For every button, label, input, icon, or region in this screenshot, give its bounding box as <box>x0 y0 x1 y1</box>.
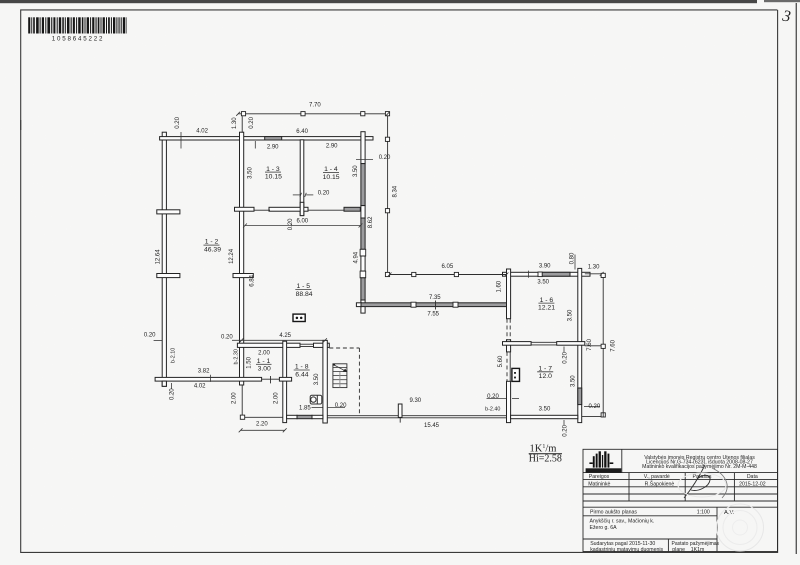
svg-text:0.20: 0.20 <box>318 190 330 196</box>
svg-text:0.20: 0.20 <box>288 218 294 230</box>
svg-text:Matininko kvalifikacijos pažym: Matininko kvalifikacijos pažymėjimo Nr. … <box>642 464 757 470</box>
svg-text:b-2.40: b-2.40 <box>485 407 500 413</box>
svg-text:0.20: 0.20 <box>562 424 568 436</box>
svg-text:0.20: 0.20 <box>379 155 391 161</box>
svg-text:3.50: 3.50 <box>571 375 577 387</box>
svg-text:0.20: 0.20 <box>562 351 568 363</box>
svg-text:1.30: 1.30 <box>232 117 238 129</box>
svg-text:plane 1K1m: plane 1K1m <box>672 547 704 553</box>
svg-text:1:100: 1:100 <box>697 509 710 515</box>
svg-text:3.82: 3.82 <box>198 368 210 374</box>
svg-text:3.50: 3.50 <box>314 373 320 385</box>
svg-text:2.90: 2.90 <box>326 143 338 149</box>
svg-text:10.15: 10.15 <box>323 174 340 181</box>
svg-text:3.50: 3.50 <box>539 407 551 413</box>
svg-text:6.84: 6.84 <box>249 274 255 286</box>
svg-text:3.00: 3.00 <box>258 366 271 373</box>
svg-text:b-2.30: b-2.30 <box>234 349 240 364</box>
svg-text:1 - 2: 1 - 2 <box>205 239 219 246</box>
svg-text:4.25: 4.25 <box>279 333 291 339</box>
svg-text:3.50: 3.50 <box>537 280 549 286</box>
svg-text:0.20: 0.20 <box>144 332 156 338</box>
svg-text:9.30: 9.30 <box>409 398 421 404</box>
svg-text:REGISTRŲ CENTRAS: REGISTRŲ CENTRAS <box>586 469 620 473</box>
svg-text:b-2.10: b-2.10 <box>170 348 176 363</box>
svg-text:Data: Data <box>747 474 758 480</box>
svg-text:6.00: 6.00 <box>296 218 308 224</box>
svg-text:1.60: 1.60 <box>497 280 503 292</box>
svg-text:2.90: 2.90 <box>267 145 279 151</box>
svg-text:2015-12-02: 2015-12-02 <box>739 481 766 487</box>
svg-text:15.45: 15.45 <box>424 423 440 429</box>
svg-text:Anykščių r. sav., Mačionių k.: Anykščių r. sav., Mačionių k. <box>590 518 655 524</box>
svg-text:3.90: 3.90 <box>539 264 551 270</box>
svg-text:7.55: 7.55 <box>427 311 439 317</box>
svg-text:0.20: 0.20 <box>335 403 347 409</box>
svg-text:3.50: 3.50 <box>248 167 254 179</box>
svg-text:4.94: 4.94 <box>354 251 360 263</box>
svg-text:12.24: 12.24 <box>229 248 235 264</box>
svg-text:1.30: 1.30 <box>588 264 600 270</box>
svg-text:4.02: 4.02 <box>194 384 206 390</box>
svg-text:7.35: 7.35 <box>429 295 441 301</box>
svg-text:0.20: 0.20 <box>249 116 255 128</box>
svg-text:1058645222: 1058645222 <box>52 35 104 42</box>
svg-text:V., pavardė: V., pavardė <box>644 474 670 480</box>
svg-text:7.60: 7.60 <box>587 338 593 350</box>
svg-text:6.05: 6.05 <box>442 264 454 270</box>
svg-text:12.0: 12.0 <box>539 373 552 380</box>
svg-text:12.64: 12.64 <box>155 249 161 265</box>
svg-text:Pareigos: Pareigos <box>589 474 610 480</box>
svg-text:2.00: 2.00 <box>231 392 237 404</box>
svg-text:8.62: 8.62 <box>368 216 374 228</box>
svg-text:0.80: 0.80 <box>570 252 576 264</box>
svg-text:Hi=2.58: Hi=2.58 <box>529 454 562 465</box>
svg-text:Parašas: Parašas <box>692 474 711 480</box>
svg-text:0.20: 0.20 <box>487 394 499 400</box>
svg-text:88.84: 88.84 <box>296 291 313 298</box>
svg-text:3.50: 3.50 <box>568 309 574 321</box>
svg-text:0.20: 0.20 <box>175 116 181 128</box>
svg-text:6.44: 6.44 <box>295 371 308 378</box>
svg-text:12.21: 12.21 <box>538 305 555 312</box>
svg-text:0.20: 0.20 <box>221 334 233 340</box>
svg-text:6.40: 6.40 <box>296 129 308 135</box>
svg-text:A.V.: A.V. <box>724 510 735 516</box>
svg-text:2.00: 2.00 <box>274 392 280 404</box>
svg-text:4.02: 4.02 <box>196 129 208 135</box>
svg-text:Matininkė: Matininkė <box>588 481 610 487</box>
svg-text:7.60: 7.60 <box>610 339 616 351</box>
svg-text:10.15: 10.15 <box>265 174 282 181</box>
svg-text:2.20: 2.20 <box>256 421 268 427</box>
svg-text:R.Šapokienė: R.Šapokienė <box>645 480 675 487</box>
svg-text:Ežero g. 6A: Ežero g. 6A <box>590 525 618 531</box>
svg-text:1.85: 1.85 <box>299 405 311 411</box>
svg-text:1.50: 1.50 <box>247 356 253 368</box>
svg-text:7.70: 7.70 <box>309 102 321 108</box>
svg-text:8.34: 8.34 <box>392 185 398 197</box>
svg-text:kadastrinių matavimų duomenis: kadastrinių matavimų duomenis <box>590 547 663 553</box>
svg-text:3.50: 3.50 <box>353 165 359 177</box>
svg-text:0.20: 0.20 <box>589 404 601 410</box>
svg-text:46.39: 46.39 <box>204 246 221 253</box>
svg-text:0.20: 0.20 <box>170 388 176 400</box>
svg-text:2.00: 2.00 <box>258 351 270 357</box>
svg-text:5.60: 5.60 <box>498 355 504 367</box>
svg-text:Pirmo aukšto planas: Pirmo aukšto planas <box>590 509 637 515</box>
